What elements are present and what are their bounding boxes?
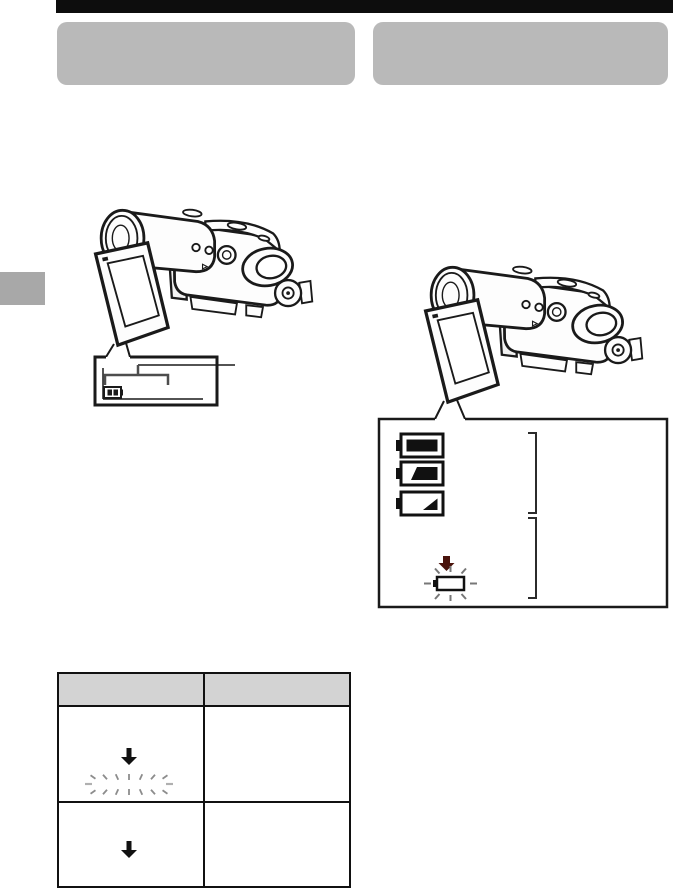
battery-outline bbox=[437, 577, 464, 590]
section-heading-left bbox=[57, 22, 355, 85]
table-header-cell-indicator bbox=[59, 674, 205, 705]
camcorder-illustration bbox=[426, 266, 643, 402]
down-arrow-icon bbox=[121, 841, 137, 858]
page-top-bar bbox=[56, 0, 673, 13]
indicator-outline bbox=[104, 387, 121, 398]
battery-full-icon bbox=[396, 434, 443, 457]
indicator-nub bbox=[121, 390, 123, 396]
figure-camcorder-right bbox=[370, 250, 673, 615]
battery-low-icon bbox=[396, 492, 443, 515]
down-arrow-graphic bbox=[59, 841, 205, 863]
table-cell-description bbox=[205, 707, 349, 801]
table-header-row bbox=[59, 674, 349, 705]
table-cell-indicator bbox=[59, 707, 205, 801]
battery-fill bbox=[407, 440, 438, 452]
down-arrow-icon bbox=[121, 748, 137, 765]
indicator-segment-2 bbox=[114, 390, 119, 396]
table-cell-description bbox=[205, 803, 349, 886]
table-cell-indicator bbox=[59, 803, 205, 886]
table-header-cell-description bbox=[205, 674, 349, 705]
flashing-rays bbox=[91, 774, 168, 795]
table-row bbox=[59, 801, 349, 886]
manual-page bbox=[0, 0, 673, 888]
battery-warning-table bbox=[57, 672, 351, 888]
indicator-segment-1 bbox=[108, 390, 113, 396]
flashing-indicator-graphic bbox=[59, 743, 205, 803]
section-heading-right bbox=[373, 22, 668, 85]
figure-camcorder-left bbox=[50, 195, 340, 410]
table-row bbox=[59, 705, 349, 801]
camcorder-illustration bbox=[96, 209, 313, 345]
remaining-battery-indicator-icon bbox=[104, 387, 123, 398]
page-edge-tab bbox=[0, 272, 45, 305]
battery-partial-icon bbox=[396, 462, 443, 485]
